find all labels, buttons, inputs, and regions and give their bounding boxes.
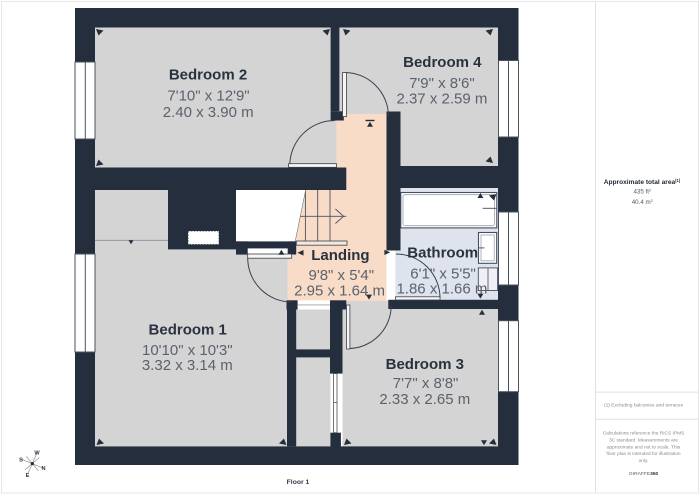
svg-text:3.32 x 3.14 m: 3.32 x 3.14 m [142,357,233,374]
svg-text:40.4 m2: 40.4 m2 [632,198,654,206]
svg-text:Approximate total area(1): Approximate total area(1) [604,178,681,186]
svg-text:1.86 x 1.66 m: 1.86 x 1.66 m [396,281,487,298]
svg-text:Bedroom 4: Bedroom 4 [403,54,482,71]
svg-text:7'10" x 12'9": 7'10" x 12'9" [167,88,249,105]
svg-text:Floor 1: Floor 1 [287,479,310,486]
svg-text:Bedroom 1: Bedroom 1 [149,322,227,339]
svg-text:3C standard. Measurements are: 3C standard. Measurements are [609,438,678,444]
svg-text:W: W [34,451,40,457]
svg-text:Calculations reference the RIC: Calculations reference the RICS IPMS [603,431,685,437]
svg-text:Bedroom 3: Bedroom 3 [386,356,464,373]
svg-text:(1) Excluding balconies and te: (1) Excluding balconies and terraces [604,403,684,409]
svg-text:9'8" x 5'4": 9'8" x 5'4" [309,267,375,284]
svg-text:only.: only. [639,458,649,464]
svg-text:approximate and not to scale.: approximate and not to scale. This [607,444,681,450]
svg-text:E: E [26,473,30,479]
svg-text:floor plan is intended for ill: floor plan is intended for illustration [606,451,680,457]
svg-text:2.33 x 2.65 m: 2.33 x 2.65 m [379,391,470,408]
svg-text:S: S [19,458,23,464]
svg-text:2.37 x 2.59 m: 2.37 x 2.59 m [396,91,487,108]
svg-text:GIRAFFE360: GIRAFFE360 [629,471,659,477]
svg-text:2.40 x 3.90 m: 2.40 x 3.90 m [163,104,254,121]
svg-text:Bathroom: Bathroom [407,244,478,261]
svg-text:2.95 x 1.64 m: 2.95 x 1.64 m [294,283,385,300]
svg-text:Bedroom 2: Bedroom 2 [169,66,247,83]
svg-text:7'7" x 8'8": 7'7" x 8'8" [393,375,459,392]
svg-text:Landing: Landing [311,247,369,264]
svg-text:N: N [41,466,45,472]
